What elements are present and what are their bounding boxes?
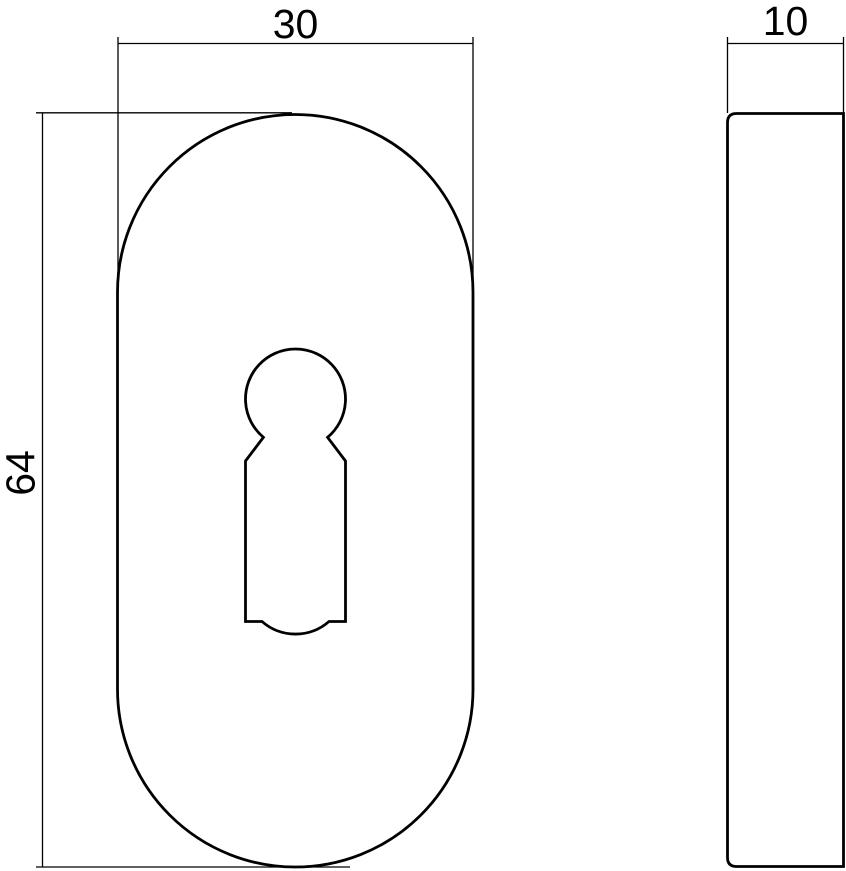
- thickness-dimension-label: 10: [763, 0, 809, 44]
- thickness-dimension: 10: [728, 0, 844, 113]
- side-view: [728, 114, 844, 867]
- keyhole-cutout: [246, 349, 346, 634]
- side-view-outline: [728, 114, 844, 867]
- width-dimension-label: 30: [273, 1, 319, 47]
- front-view: [118, 115, 474, 868]
- height-dimension-label: 64: [0, 450, 44, 496]
- escutcheon-dimension-drawing: 30 64 10: [0, 0, 846, 871]
- technical-drawing-canvas: 30 64 10: [0, 0, 846, 871]
